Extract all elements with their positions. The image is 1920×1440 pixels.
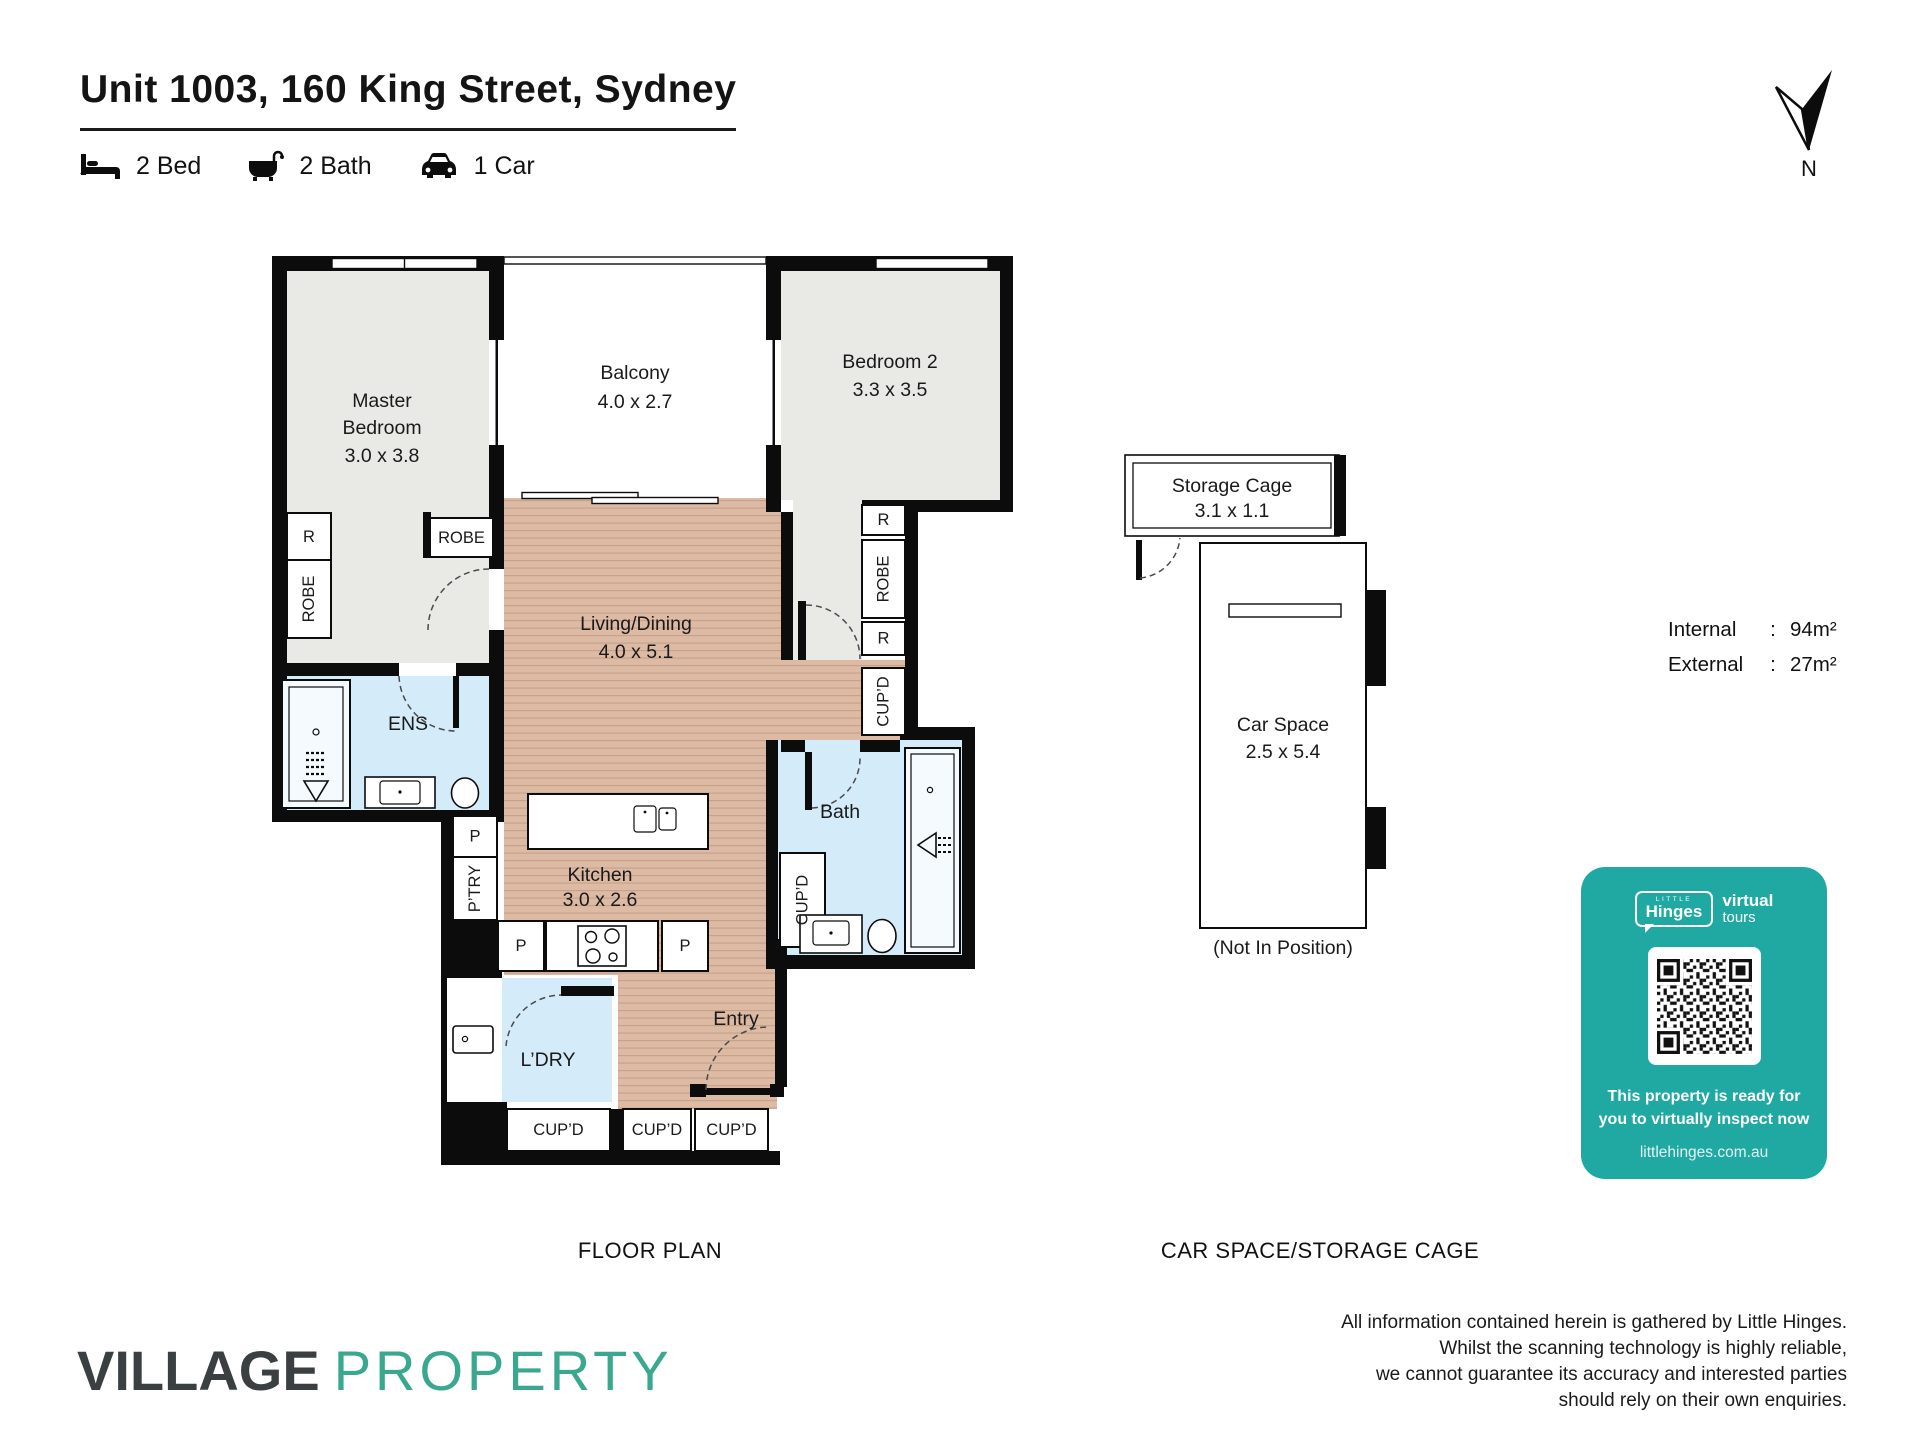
hinges-speech-bubble-icon: LITTLE Hinges [1635,891,1714,927]
kitchen-label: Kitchen [567,864,632,886]
storage-cage-dims: 3.1 x 1.1 [1195,500,1270,522]
floor-plan: Master Bedroom 3.0 x 3.8 Balcony 4.0 x 2… [260,245,1020,1175]
floor-plan-caption: FLOOR PLAN [450,1238,850,1264]
internal-area-value: 94m² [1790,618,1850,642]
little-hinges-logo: LITTLE Hinges virtual tours [1581,891,1827,927]
bedroom2-dims: 3.3 x 3.5 [853,379,928,401]
qr-code [1648,947,1761,1065]
feature-bath: 2 Bath [247,150,371,182]
feature-summary: 2 Bed 2 Bath 1 Car [80,150,535,182]
entry-label: Entry [713,1008,759,1030]
pantry-p-label: P [469,828,480,846]
area-summary: Internal : 94m² External : 27m² [1668,618,1850,688]
ptry-label: P’TRY [466,865,484,912]
bedroom2-label: Bedroom 2 [842,351,937,373]
pantry-p-label: P [515,937,526,955]
cupd-label: CUP’D [875,676,893,727]
car-space-dims: 2.5 x 5.4 [1246,741,1321,763]
car-space-caption: CAR SPACE/STORAGE CAGE [1070,1238,1570,1264]
agency-logo: VILLAGEPROPERTY [77,1338,673,1403]
page-title: Unit 1003, 160 King Street, Sydney [80,68,736,131]
washing-machine [453,1026,493,1053]
external-area-row: External : 27m² [1668,653,1850,677]
feature-bed: 2 Bed [80,152,201,181]
disclaimer-text: All information contained herein is gath… [1247,1310,1847,1414]
bath-toilet [868,920,896,953]
internal-area-row: Internal : 94m² [1668,618,1850,642]
not-in-position-note: (Not In Position) [1213,937,1353,959]
bath-icon [247,150,285,182]
agency-logo-property: PROPERTY [334,1339,673,1402]
promo-url: littlehinges.com.au [1581,1144,1827,1162]
robe-label: ROBE [875,556,893,603]
feature-car-label: 1 Car [474,152,535,181]
cupd-label: CUP’D [706,1121,757,1139]
virtual-tour-panel: LITTLE Hinges virtual tours [1581,867,1827,1179]
feature-car: 1 Car [418,151,535,181]
car-icon [418,151,460,181]
living-dining-dims: 4.0 x 5.1 [599,641,674,663]
robe-label: ROBE [438,529,485,547]
ens-label: ENS [388,713,428,735]
bed-icon [80,152,122,180]
north-label: N [1801,156,1817,181]
cupd-label: CUP’D [794,875,812,926]
svg-text:Bedroom: Bedroom [342,417,421,439]
robe-r-label: R [878,630,890,648]
feature-bath-label: 2 Bath [299,152,371,181]
agency-logo-village: VILLAGE [77,1339,320,1402]
robe-r-label: R [303,528,315,546]
cooktop [578,926,626,966]
cupd-label: CUP’D [632,1121,683,1139]
promo-text: This property is ready for you to virtua… [1581,1085,1827,1131]
car-space-label: Car Space [1237,714,1329,736]
pantry-p-label: P [679,937,690,955]
island-sink [634,806,656,832]
master-bedroom-dims: 3.0 x 3.8 [345,445,420,467]
storage-cage-label: Storage Cage [1172,475,1292,497]
balcony-dims: 4.0 x 2.7 [598,391,673,413]
robe-label: ROBE [300,576,318,623]
master-bedroom-label: Master [352,390,412,412]
balcony-label: Balcony [600,362,670,384]
cupd-label: CUP’D [533,1121,584,1139]
living-dining-label: Living/Dining [580,613,692,635]
robe-r-label: R [878,511,890,529]
feature-bed-label: 2 Bed [136,152,201,181]
internal-area-label: Internal [1668,618,1756,642]
car-space-diagram: Storage Cage 3.1 x 1.1 Car Space 2.5 x 5… [1120,440,1410,970]
kitchen-dims: 3.0 x 2.6 [563,889,638,911]
external-area-label: External [1668,653,1756,677]
external-area-value: 27m² [1790,653,1850,677]
north-arrow: N [1768,62,1860,188]
wheel-stop [1229,604,1341,617]
ens-toilet [452,778,479,808]
laundry-label: L’DRY [521,1049,576,1071]
bath-label: Bath [820,801,860,823]
